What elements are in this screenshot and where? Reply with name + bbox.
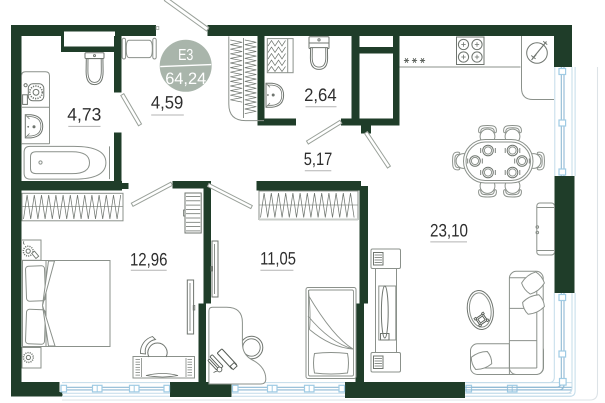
svg-text:12,96: 12,96	[130, 250, 168, 270]
svg-text:11,05: 11,05	[260, 249, 296, 269]
svg-text:E3: E3	[178, 47, 193, 64]
svg-text:2,64: 2,64	[304, 85, 337, 105]
svg-text:4,59: 4,59	[151, 93, 184, 113]
svg-text:5,17: 5,17	[304, 149, 333, 169]
svg-text:23,10: 23,10	[430, 221, 468, 241]
svg-text:4,73: 4,73	[67, 104, 101, 124]
svg-text:64,24: 64,24	[165, 70, 206, 88]
